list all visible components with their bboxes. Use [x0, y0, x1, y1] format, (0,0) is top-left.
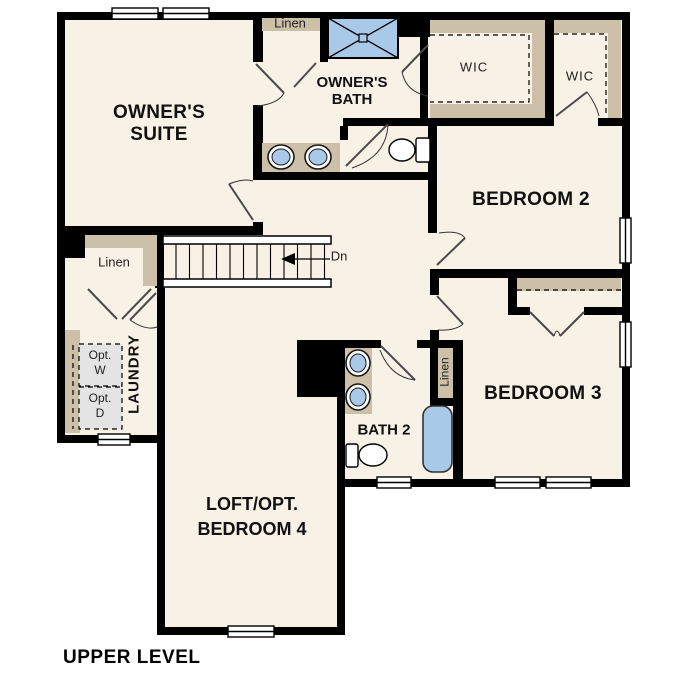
loft-label: LOFT/OPT. BEDROOM 4	[197, 492, 306, 542]
stairs-dn-label: Dn	[331, 250, 348, 265]
wic1-label: WIC	[460, 61, 488, 76]
bath2-label: BATH 2	[357, 421, 410, 438]
bedroom2-label: BEDROOM 2	[472, 189, 590, 211]
laundry-label: LAUNDRY	[125, 334, 142, 414]
wic2-label: WIC	[566, 70, 594, 85]
floor-plan: OWNER'S SUITE OWNER'S BATH Linen WIC WIC…	[0, 0, 687, 687]
owners-suite-label: OWNER'S SUITE	[113, 102, 205, 146]
bathtub-icon	[423, 406, 452, 472]
optional-dryer-label: Opt. D	[89, 391, 112, 421]
plan-title: UPPER LEVEL	[63, 647, 200, 669]
owners-wc-toilet-icon	[389, 138, 430, 162]
linen-bath2-label: Linen	[438, 357, 453, 386]
bath2-toilet-icon	[346, 444, 387, 467]
owners-bath-label: OWNER'S BATH	[316, 74, 387, 109]
bedroom3-label: BEDROOM 3	[484, 383, 602, 405]
linen-top-label: Linen	[274, 17, 306, 32]
linen-left-label: Linen	[98, 256, 130, 271]
shower-icon	[328, 18, 398, 58]
optional-washer-label: Opt. W	[89, 348, 112, 378]
